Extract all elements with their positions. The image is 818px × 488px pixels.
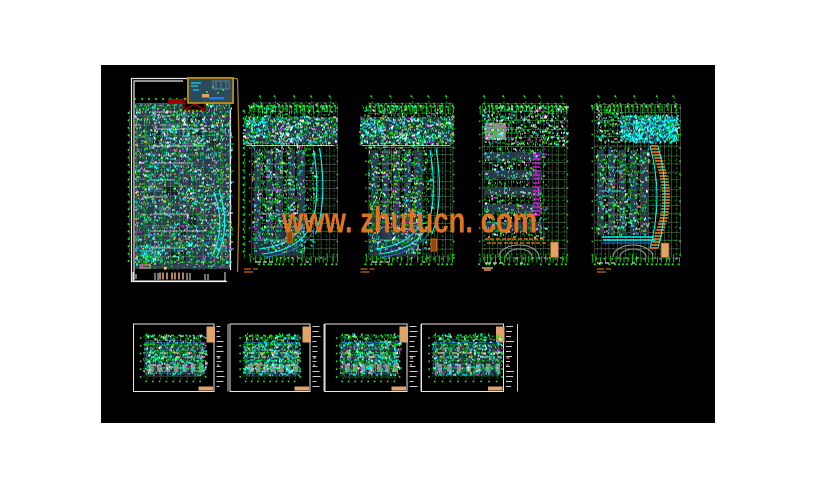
svg-text:www. zhutucn. com: www. zhutucn. com — [281, 200, 537, 241]
